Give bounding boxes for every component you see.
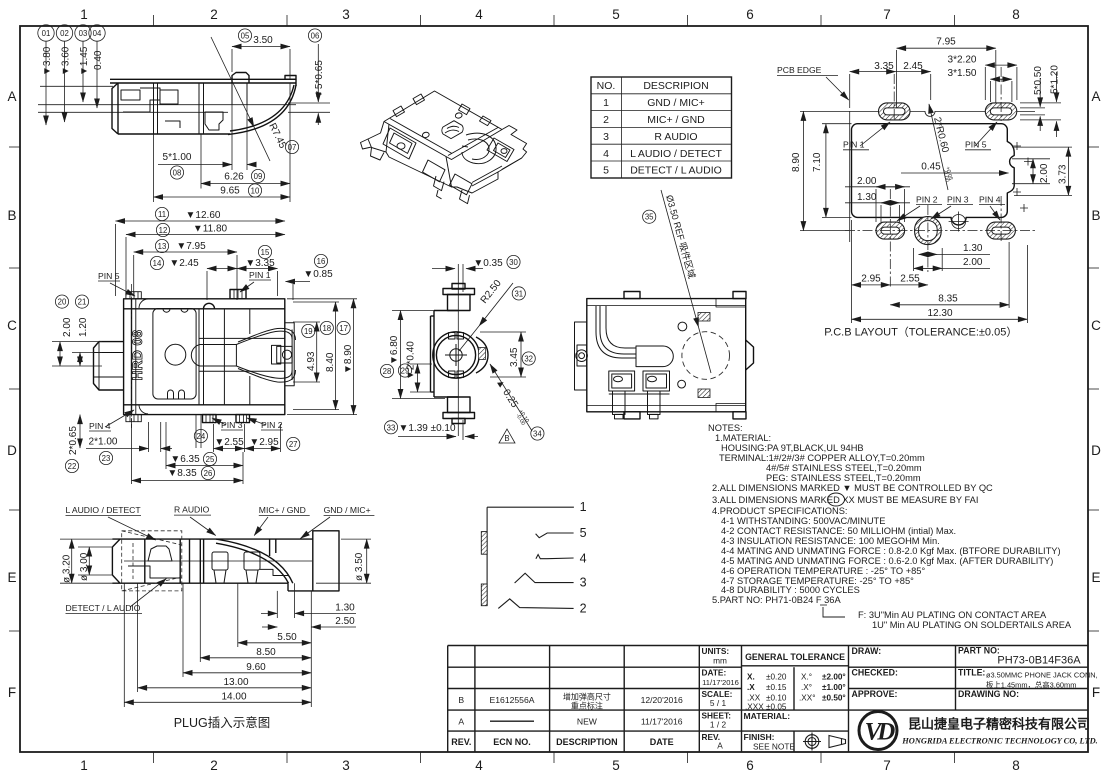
- svg-text:2*1.00: 2*1.00: [89, 437, 118, 448]
- svg-text:3: 3: [342, 758, 350, 773]
- svg-text:1: 1: [580, 500, 587, 514]
- svg-text:MIC+ / GND: MIC+ / GND: [259, 505, 306, 515]
- svg-text:▼3.60: ▼3.60: [61, 46, 72, 76]
- svg-text:DRAW:: DRAW:: [852, 646, 882, 656]
- svg-text:08: 08: [173, 169, 182, 178]
- svg-text:X.°: X.°: [801, 673, 812, 682]
- svg-text:GND / MIC+: GND / MIC+: [324, 505, 371, 515]
- svg-text:0.45: 0.45: [921, 162, 941, 173]
- svg-text:▼7.95: ▼7.95: [176, 241, 206, 252]
- svg-text:TERMINAL:1#/2#/3# COPPER ALLOY: TERMINAL:1#/2#/3# COPPER ALLOY,T=0.20mm: [719, 453, 925, 463]
- svg-text:2: 2: [210, 7, 218, 22]
- svg-text:1: 1: [80, 758, 88, 773]
- svg-text:E: E: [1091, 570, 1100, 585]
- svg-text:8.90: 8.90: [791, 152, 802, 172]
- svg-text:1.30: 1.30: [857, 192, 877, 203]
- svg-text:2.50: 2.50: [335, 616, 355, 627]
- svg-text:7: 7: [883, 7, 891, 22]
- svg-text:5: 5: [612, 7, 620, 22]
- svg-text:8.35: 8.35: [938, 293, 958, 304]
- svg-text:2.00: 2.00: [62, 317, 73, 337]
- svg-text:6: 6: [746, 7, 754, 22]
- svg-text:3*1.50: 3*1.50: [948, 68, 977, 79]
- svg-text:03: 03: [79, 29, 88, 38]
- svg-text:04: 04: [93, 29, 102, 38]
- svg-text:DRAWING NO:: DRAWING NO:: [958, 689, 1019, 699]
- svg-text:VD: VD: [865, 719, 896, 746]
- svg-text:±1.00°: ±1.00°: [822, 683, 846, 692]
- svg-text:UNITS:: UNITS:: [702, 646, 730, 656]
- svg-text:8: 8: [1012, 758, 1020, 773]
- svg-text:6: 6: [746, 758, 754, 773]
- svg-text:CHECKED:: CHECKED:: [852, 668, 898, 678]
- svg-text:±0.15: ±0.15: [766, 683, 787, 692]
- svg-text:3.45: 3.45: [509, 347, 520, 367]
- svg-text:ø 3.00: ø 3.00: [79, 552, 90, 581]
- svg-text:7.10: 7.10: [812, 152, 823, 172]
- svg-text:▼3.35: ▼3.35: [245, 258, 275, 269]
- svg-text:SEE NOTE: SEE NOTE: [753, 742, 795, 752]
- svg-text:±0.10: ±0.10: [766, 694, 787, 703]
- svg-text:5*1.20: 5*1.20: [1050, 65, 1061, 94]
- svg-text:▼2*0.40: ▼2*0.40: [406, 341, 417, 380]
- svg-text:mm: mm: [713, 656, 727, 666]
- svg-text:4-2 CONTACT RESISTANCE: 50 MIL: 4-2 CONTACT RESISTANCE: 50 MILLIOHM (int…: [721, 526, 956, 536]
- svg-text:4-1 WITHSTANDING: 500VAC/MINUT: 4-1 WITHSTANDING: 500VAC/MINUTE: [721, 516, 885, 526]
- svg-text:4-4 MATING AND UNMATING FORCE: 4-4 MATING AND UNMATING FORCE : 0.8-2.0 …: [721, 546, 1061, 556]
- svg-text:11/17'2016: 11/17'2016: [702, 678, 739, 687]
- svg-text:3: 3: [342, 7, 350, 22]
- svg-text:HOUSING:PA 9T,BLACK,UL 94HB: HOUSING:PA 9T,BLACK,UL 94HB: [721, 443, 864, 453]
- svg-text:9.65: 9.65: [220, 186, 240, 197]
- svg-text:PEG: STAINLESS STEEL,T=0.20mm: PEG: STAINLESS STEEL,T=0.20mm: [766, 473, 921, 483]
- svg-text:8.40: 8.40: [325, 352, 336, 372]
- svg-text:APPROVE:: APPROVE:: [852, 689, 898, 699]
- svg-text:3: 3: [603, 131, 609, 143]
- svg-text:重点标注: 重点标注: [571, 701, 603, 711]
- svg-text:±2.00°: ±2.00°: [822, 673, 846, 682]
- svg-text:DESCRIPTION: DESCRIPTION: [556, 737, 618, 747]
- svg-text:C: C: [7, 318, 17, 333]
- svg-text:L AUDIO / DETECT: L AUDIO / DETECT: [66, 505, 142, 515]
- svg-text:9.60: 9.60: [246, 662, 266, 673]
- svg-text:12/20'2016: 12/20'2016: [641, 695, 683, 705]
- svg-text:4: 4: [475, 758, 483, 773]
- svg-text:B: B: [1091, 208, 1100, 223]
- svg-text:17: 17: [339, 324, 348, 333]
- svg-text:4: 4: [475, 7, 483, 22]
- svg-text:C: C: [1091, 318, 1101, 333]
- svg-text:4-6 OPERATION TEMPERATURE : -2: 4-6 OPERATION TEMPERATURE : -25° TO +85°: [721, 566, 925, 576]
- svg-text:1: 1: [80, 7, 88, 22]
- svg-text:▼2.45: ▼2.45: [169, 258, 199, 269]
- svg-text:4: 4: [580, 552, 587, 566]
- svg-text:▼8.35: ▼8.35: [167, 468, 197, 479]
- svg-text:▼6.80: ▼6.80: [389, 335, 400, 365]
- svg-text:7: 7: [883, 758, 891, 773]
- svg-text:B: B: [7, 208, 16, 223]
- svg-text:NEW: NEW: [577, 717, 598, 727]
- svg-text:F: 3U"Min AU PLATING ON CONTAC: F: 3U"Min AU PLATING ON CONTACT AREA: [858, 610, 1047, 620]
- svg-text:DATE: DATE: [650, 737, 674, 747]
- svg-text:板上1.45mm，总高3.60mm: 板上1.45mm，总高3.60mm: [986, 681, 1076, 690]
- svg-text:5 / 1: 5 / 1: [710, 698, 727, 708]
- svg-text:P.C.B LAYOUT（TOLERANCE:±0.05）: P.C.B LAYOUT（TOLERANCE:±0.05）: [824, 326, 1017, 339]
- svg-text:2*0.65: 2*0.65: [68, 426, 79, 455]
- svg-text:DETECT / L AUDIO: DETECT / L AUDIO: [630, 165, 722, 177]
- svg-text:▼3.80: ▼3.80: [42, 46, 53, 76]
- svg-text:3.35: 3.35: [874, 61, 894, 72]
- svg-text:B: B: [504, 434, 509, 443]
- svg-text:±0.20: ±0.20: [766, 673, 787, 682]
- svg-text:NO.: NO.: [597, 80, 616, 92]
- svg-text:B: B: [458, 695, 464, 705]
- svg-text:4.PRODUCT SPECIFICATIONS:: 4.PRODUCT SPECIFICATIONS:: [712, 506, 848, 516]
- svg-text:±0.50°: ±0.50°: [822, 694, 846, 703]
- svg-text:5: 5: [612, 758, 620, 773]
- svg-text:21: 21: [78, 298, 87, 307]
- svg-text:26: 26: [204, 469, 213, 478]
- svg-text:▼1.39 ±0.10: ▼1.39 ±0.10: [398, 423, 456, 434]
- svg-text:.XXX: .XXX: [745, 702, 764, 711]
- svg-text:11: 11: [158, 210, 166, 219]
- svg-text:FINISH:: FINISH:: [744, 732, 775, 742]
- svg-text:E: E: [7, 570, 16, 585]
- svg-text:DATE:: DATE:: [702, 668, 727, 678]
- svg-text:2.55: 2.55: [900, 274, 920, 285]
- svg-text:R AUDIO: R AUDIO: [174, 505, 210, 515]
- svg-text:22: 22: [68, 462, 77, 471]
- svg-text:13.00: 13.00: [223, 677, 248, 688]
- svg-text:2: 2: [580, 601, 587, 615]
- svg-text:PART NO:: PART NO:: [958, 646, 1000, 656]
- svg-text:5: 5: [603, 165, 609, 177]
- svg-text:23: 23: [102, 454, 111, 463]
- svg-text:F: F: [8, 685, 16, 700]
- svg-text:HRD 08: HRD 08: [130, 329, 145, 380]
- svg-text:ECN NO.: ECN NO.: [493, 737, 531, 747]
- svg-text:1U" Min AU PLATING ON SOLDERTA: 1U" Min AU PLATING ON SOLDERTAILS AREA: [872, 620, 1072, 630]
- svg-text:31: 31: [514, 289, 523, 298]
- svg-text:R AUDIO: R AUDIO: [654, 131, 697, 143]
- svg-text:DESCRIPION: DESCRIPION: [643, 80, 708, 92]
- svg-text:27: 27: [289, 440, 298, 449]
- svg-text:.XX: .XX: [747, 694, 761, 703]
- svg-text:13: 13: [158, 242, 167, 251]
- svg-text:X.: X.: [747, 673, 755, 682]
- svg-text:4.93: 4.93: [306, 351, 317, 371]
- svg-text:NOTES:: NOTES:: [708, 423, 743, 433]
- svg-text:06: 06: [311, 32, 320, 41]
- svg-text:4-8 DURABILITY : 5000 CYCLES: 4-8 DURABILITY : 5000 CYCLES: [721, 585, 860, 595]
- svg-text:ø 3.50: ø 3.50: [354, 552, 365, 581]
- svg-text:09: 09: [254, 172, 263, 181]
- svg-text:▼1.45: ▼1.45: [79, 46, 90, 76]
- svg-text:02: 02: [60, 29, 69, 38]
- svg-text:5.50: 5.50: [277, 632, 297, 643]
- svg-text:33: 33: [387, 423, 396, 432]
- svg-text:2.00: 2.00: [1039, 163, 1050, 183]
- svg-text:PIN 1: PIN 1: [249, 270, 271, 280]
- svg-text:1.MATERIAL:: 1.MATERIAL:: [715, 433, 771, 443]
- svg-text:2.00: 2.00: [963, 257, 983, 268]
- svg-text:REV.: REV.: [451, 737, 471, 747]
- svg-text:E1612556A: E1612556A: [490, 695, 535, 705]
- svg-text:D: D: [1091, 443, 1101, 458]
- svg-text:19: 19: [304, 327, 313, 336]
- svg-text:昆山捷皇电子精密科技有限公司: 昆山捷皇电子精密科技有限公司: [908, 717, 1090, 732]
- svg-text:A: A: [7, 89, 16, 104]
- svg-text:▼8.90: ▼8.90: [343, 344, 354, 374]
- svg-text:5: 5: [580, 526, 587, 540]
- svg-text:HONGRIDA ELECTRONIC TECHNOLOGY: HONGRIDA ELECTRONIC TECHNOLOGY CO, LTD.: [901, 737, 1097, 746]
- svg-text:1.30: 1.30: [963, 243, 983, 254]
- svg-text:ø3.50MMC PHONE JACK CONN,: ø3.50MMC PHONE JACK CONN,: [986, 671, 1098, 680]
- svg-text:PIN 2: PIN 2: [261, 420, 283, 430]
- svg-text:MATERIAL:: MATERIAL:: [744, 711, 791, 721]
- svg-text:▼0.35: ▼0.35: [473, 258, 503, 269]
- svg-text:▼0.85: ▼0.85: [303, 269, 333, 280]
- svg-text:4: 4: [603, 148, 609, 160]
- svg-text:4-5 MATING AND UNMATING FORCE: 4-5 MATING AND UNMATING FORCE : 0.6-2.0 …: [721, 556, 1053, 566]
- svg-text:5*1.00: 5*1.00: [163, 152, 192, 163]
- svg-text:5.PART NO: PH71-0B24 F 36A: 5.PART NO: PH71-0B24 F 36A: [712, 595, 841, 605]
- svg-text:05: 05: [241, 32, 250, 41]
- svg-text:1: 1: [603, 97, 609, 109]
- svg-text:▼5*0.65: ▼5*0.65: [314, 60, 325, 99]
- svg-text:3.50: 3.50: [253, 35, 273, 46]
- svg-text:1 / 2: 1 / 2: [710, 720, 727, 730]
- svg-text:2.ALL DIMENSIONS MARKED ▼ MUST: 2.ALL DIMENSIONS MARKED ▼ MUST BE CONTRO…: [712, 483, 993, 493]
- svg-text:.XX°: .XX°: [799, 694, 815, 703]
- svg-text:PIN 3: PIN 3: [947, 194, 969, 204]
- svg-text:15: 15: [261, 248, 270, 257]
- svg-text:1.20: 1.20: [78, 317, 89, 337]
- svg-text:A: A: [1091, 89, 1100, 104]
- svg-text:0.40: 0.40: [93, 50, 104, 70]
- svg-text:14.00: 14.00: [221, 691, 246, 702]
- svg-text:12.30: 12.30: [927, 308, 952, 319]
- svg-text:PIN 4: PIN 4: [979, 194, 1001, 204]
- svg-text:GND / MIC+: GND / MIC+: [647, 97, 704, 109]
- svg-text:A: A: [717, 741, 723, 751]
- svg-text:PH73-0B14F36A: PH73-0B14F36A: [997, 655, 1081, 667]
- svg-text:▼11.80: ▼11.80: [193, 224, 228, 235]
- svg-text:PCB EDGE: PCB EDGE: [777, 65, 822, 75]
- svg-text:D: D: [7, 443, 17, 458]
- svg-text:35: 35: [645, 213, 654, 222]
- svg-text:PLUG插入示意图: PLUG插入示意图: [174, 715, 271, 730]
- svg-text:01: 01: [42, 29, 51, 38]
- svg-text:4#/5# STAINLESS STEEL,T=0.20mm: 4#/5# STAINLESS STEEL,T=0.20mm: [766, 463, 922, 473]
- svg-text:.X°: .X°: [801, 683, 812, 692]
- svg-text:2.00: 2.00: [857, 176, 877, 187]
- svg-text:▼2.95: ▼2.95: [249, 437, 279, 448]
- svg-text:3.73: 3.73: [1058, 164, 1069, 184]
- svg-text:28: 28: [383, 367, 392, 376]
- svg-text:2: 2: [603, 114, 609, 126]
- svg-text:6.26: 6.26: [224, 172, 244, 183]
- svg-text:L AUDIO / DETECT: L AUDIO / DETECT: [630, 148, 722, 160]
- svg-text:07: 07: [288, 143, 297, 152]
- svg-text:▼12.60: ▼12.60: [186, 210, 221, 221]
- svg-text:5*0.50: 5*0.50: [1033, 66, 1044, 95]
- svg-text:8.50: 8.50: [256, 647, 276, 658]
- svg-text:34: 34: [533, 430, 542, 439]
- svg-text:▼6.35: ▼6.35: [170, 454, 200, 465]
- svg-text:16: 16: [317, 257, 326, 266]
- svg-text:4-3 INSULATION RESISTANCE: 100: 4-3 INSULATION RESISTANCE: 100 MEGOHM Mi…: [721, 536, 940, 546]
- svg-text:±0.05: ±0.05: [766, 702, 787, 711]
- svg-text:30: 30: [509, 258, 518, 267]
- svg-text:3.ALL DIMENSIONS MARKED XX MU: 3.ALL DIMENSIONS MARKED XX MUST BE MEASU…: [712, 495, 978, 505]
- svg-text:3*2.20: 3*2.20: [948, 55, 977, 66]
- svg-text:10: 10: [251, 187, 260, 196]
- svg-text:GENERAL TOLERANCE: GENERAL TOLERANCE: [745, 652, 845, 662]
- svg-text:TITLE:: TITLE:: [958, 668, 985, 678]
- svg-text:MIC+ / GND: MIC+ / GND: [647, 114, 705, 126]
- svg-text:2: 2: [210, 758, 218, 773]
- svg-text:2.45: 2.45: [903, 61, 923, 72]
- svg-text:25: 25: [206, 455, 215, 464]
- svg-text:PIN 5: PIN 5: [98, 271, 120, 281]
- svg-text:1.30: 1.30: [335, 602, 355, 613]
- svg-text:DETECT / L AUDIO: DETECT / L AUDIO: [66, 603, 141, 613]
- svg-text:PIN 2: PIN 2: [916, 194, 938, 204]
- svg-text:2.95: 2.95: [861, 274, 881, 285]
- svg-text:32: 32: [524, 355, 533, 364]
- svg-text:3: 3: [580, 576, 587, 590]
- svg-text:14: 14: [153, 259, 162, 268]
- svg-text:18: 18: [322, 324, 331, 333]
- svg-text:.X: .X: [747, 683, 755, 692]
- svg-text:▼2.55: ▼2.55: [214, 437, 244, 448]
- svg-text:增加弹高尺寸: 增加弹高尺寸: [563, 692, 611, 702]
- svg-text:A: A: [458, 717, 464, 727]
- svg-text:8: 8: [1012, 7, 1020, 22]
- svg-text:11/17'2016: 11/17'2016: [641, 717, 683, 727]
- svg-text:ø 3.20: ø 3.20: [62, 554, 73, 583]
- svg-text:12: 12: [159, 226, 168, 235]
- svg-text:PIN 3: PIN 3: [221, 420, 243, 430]
- svg-text:7.95: 7.95: [936, 37, 956, 48]
- svg-text:F: F: [1092, 685, 1100, 700]
- svg-text:20: 20: [58, 298, 67, 307]
